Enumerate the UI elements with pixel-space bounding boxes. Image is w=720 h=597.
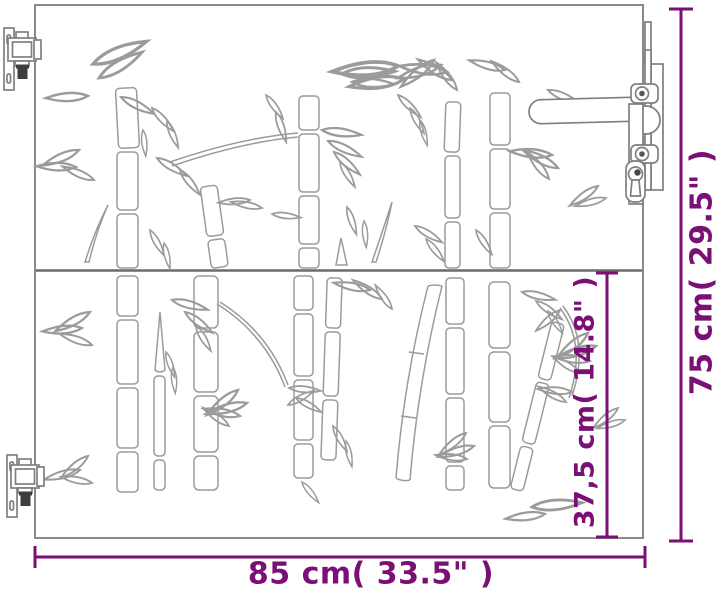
gate-line-drawing — [0, 0, 720, 597]
top-bracket — [631, 84, 658, 103]
keyhole-icon — [626, 161, 645, 202]
width-dimension-label: 85 cm( 33.5" ) — [248, 557, 494, 592]
product-dimension-diagram: 85 cm( 33.5" ) 75 cm( 29.5" ) 37,5 cm( 1… — [0, 0, 720, 597]
handle-lever — [529, 97, 644, 124]
height-dimension-label: 75 cm( 29.5" ) — [685, 149, 720, 395]
section-dimension-label: 37,5 cm( 14.8" ) — [570, 276, 601, 528]
